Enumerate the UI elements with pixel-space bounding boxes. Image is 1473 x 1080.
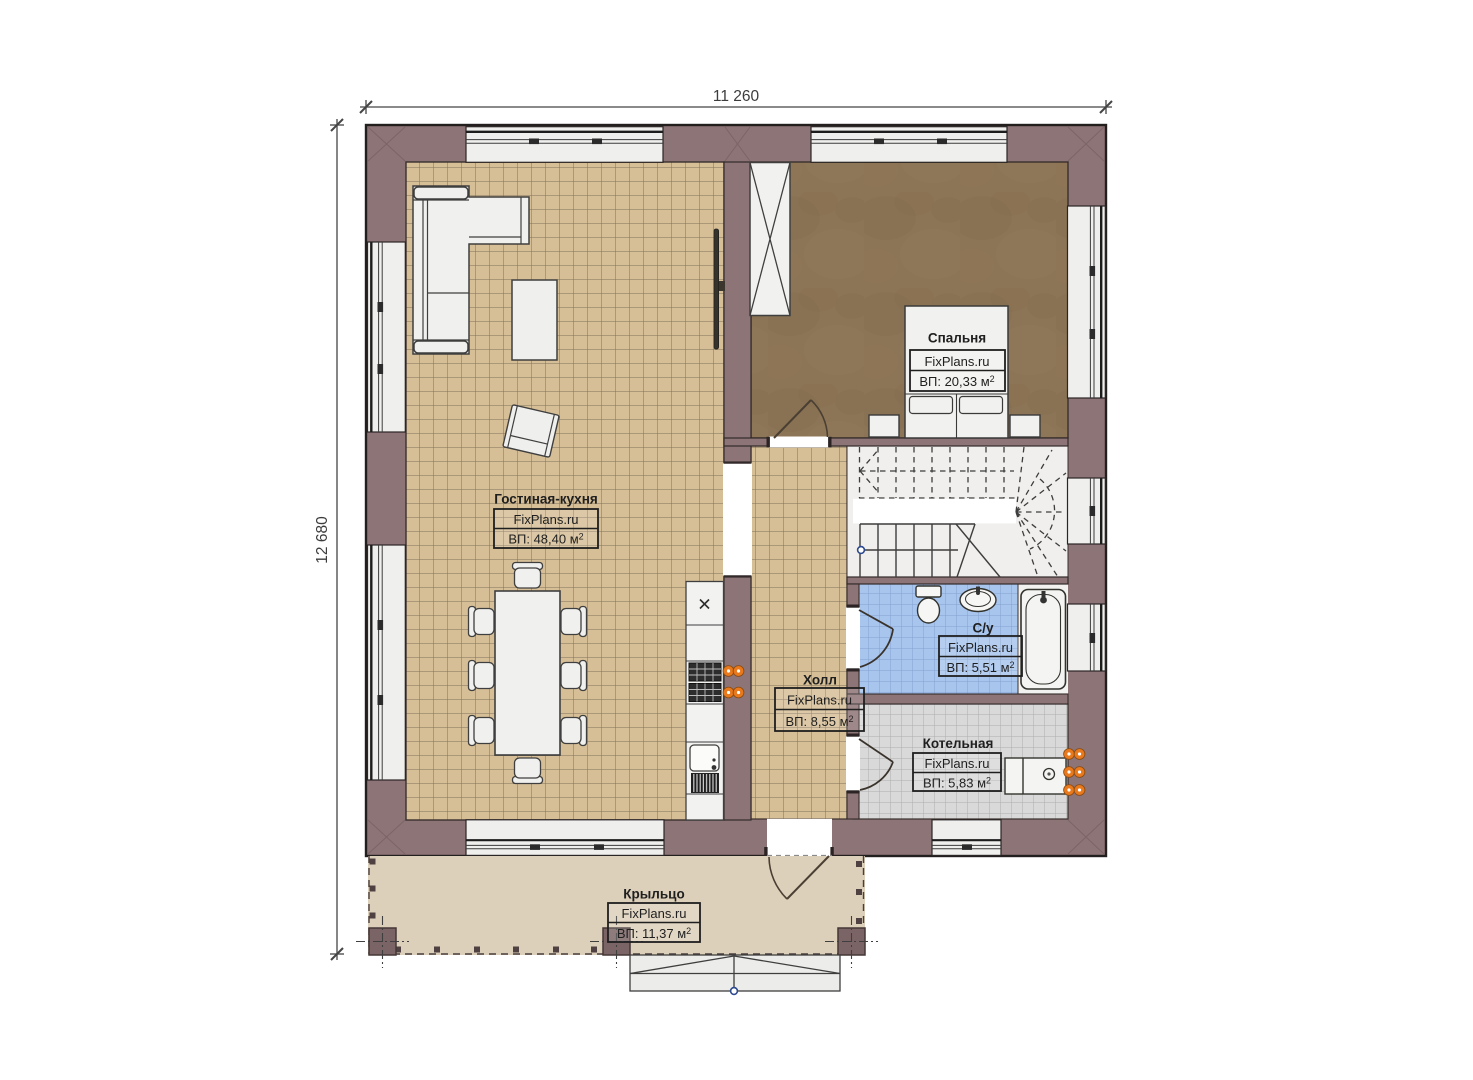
svg-text:FixPlans.ru: FixPlans.ru	[787, 693, 852, 708]
svg-text:ВП: 11,37 м2: ВП: 11,37 м2	[617, 926, 691, 941]
svg-text:ВП: 48,40 м2: ВП: 48,40 м2	[508, 532, 583, 547]
svg-text:FixPlans.ru: FixPlans.ru	[948, 640, 1013, 655]
svg-text:ВП: 8,55 м2: ВП: 8,55 м2	[785, 714, 853, 729]
svg-text:Гостиная-кухня: Гостиная-кухня	[494, 492, 597, 507]
svg-text:12 680: 12 680	[314, 516, 331, 564]
svg-text:ВП: 5,51 м2: ВП: 5,51 м2	[946, 660, 1014, 675]
svg-text:ВП: 20,33 м2: ВП: 20,33 м2	[919, 374, 994, 389]
svg-text:FixPlans.ru: FixPlans.ru	[621, 906, 686, 921]
svg-text:FixPlans.ru: FixPlans.ru	[924, 354, 989, 369]
svg-text:ВП: 5,83 м2: ВП: 5,83 м2	[923, 776, 991, 791]
svg-text:Котельная: Котельная	[923, 736, 994, 751]
svg-text:11 260: 11 260	[713, 88, 760, 105]
svg-text:FixPlans.ru: FixPlans.ru	[924, 756, 989, 771]
svg-text:FixPlans.ru: FixPlans.ru	[513, 512, 578, 527]
svg-text:Холл: Холл	[803, 673, 837, 688]
svg-text:Спальня: Спальня	[928, 331, 986, 346]
svg-text:Крыльцо: Крыльцо	[623, 887, 684, 902]
svg-text:С/у: С/у	[972, 621, 994, 636]
